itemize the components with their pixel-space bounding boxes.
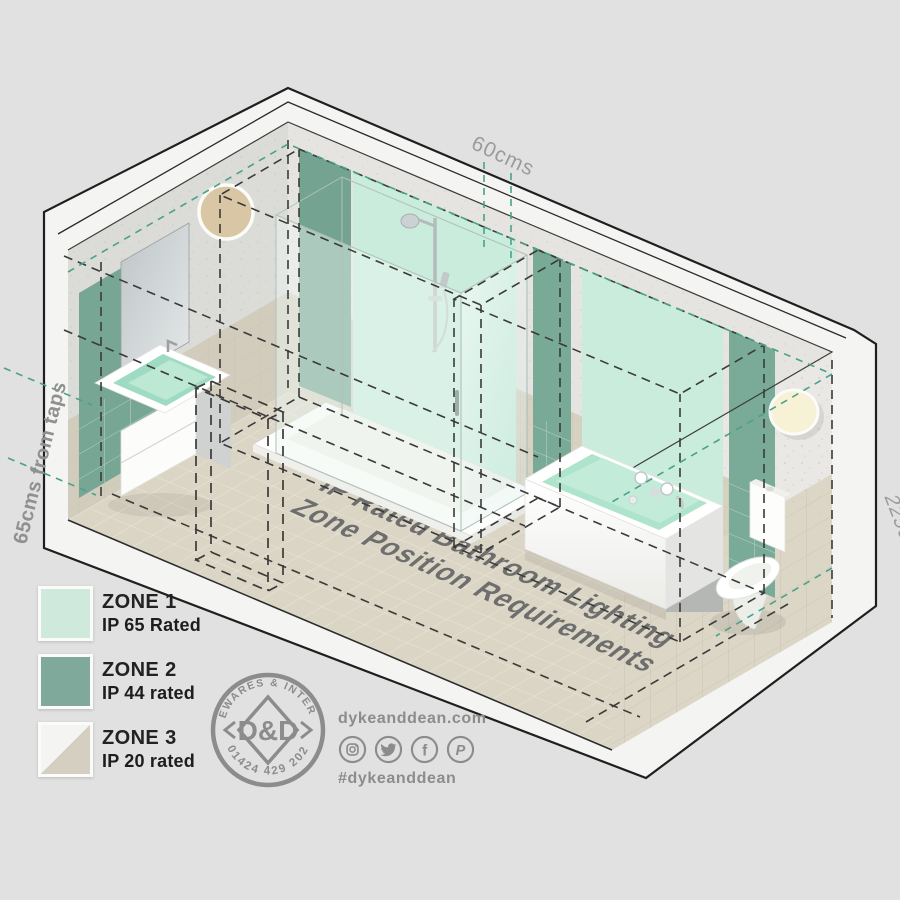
ceiling-light-left [199, 185, 253, 239]
stamp-monogram: D&D [238, 715, 299, 746]
facebook-icon: f [410, 735, 439, 764]
svg-text:f: f [422, 742, 428, 759]
zone1-label: ZONE 1 [102, 591, 201, 615]
legend-item-zone1: ZONE 1 IP 65 Rated [38, 586, 201, 641]
dimension-zone-height: 225cms [879, 494, 900, 568]
poster: IP Rated Bathroom Lighting Zone Position… [0, 0, 900, 900]
zone-legend: ZONE 1 IP 65 Rated ZONE 2 IP 44 rated ZO… [38, 586, 201, 790]
shower-door-handle-icon [455, 390, 459, 416]
social-icons-row: f P [338, 735, 487, 764]
zone2-swatch [38, 654, 93, 709]
zone2-label: ZONE 2 [102, 659, 195, 683]
zone2-rating: IP 44 rated [102, 683, 195, 704]
zone1-rating: IP 65 Rated [102, 615, 201, 636]
hashtag: #dykeanddean [338, 770, 487, 788]
legend-item-zone2: ZONE 2 IP 44 rated [38, 654, 201, 709]
pinterest-icon: P [446, 735, 475, 764]
brand-stamp: HOMEWARES & INTERIORS 01424 429 202 D&D [206, 668, 330, 792]
zone1-swatch [38, 586, 93, 641]
svg-text:P: P [456, 743, 466, 759]
zone3-rating: IP 20 rated [102, 751, 195, 772]
instagram-icon [338, 735, 367, 764]
website-url: dykeanddean.com [338, 710, 487, 728]
zone3-label: ZONE 3 [102, 727, 195, 751]
shower-glass-front [461, 255, 527, 531]
social-block: dykeanddean.com f P #dykeanddean [338, 710, 487, 788]
zone3-swatch [38, 722, 93, 777]
legend-item-zone3: ZONE 3 IP 20 rated [38, 722, 201, 777]
twitter-icon [374, 735, 403, 764]
